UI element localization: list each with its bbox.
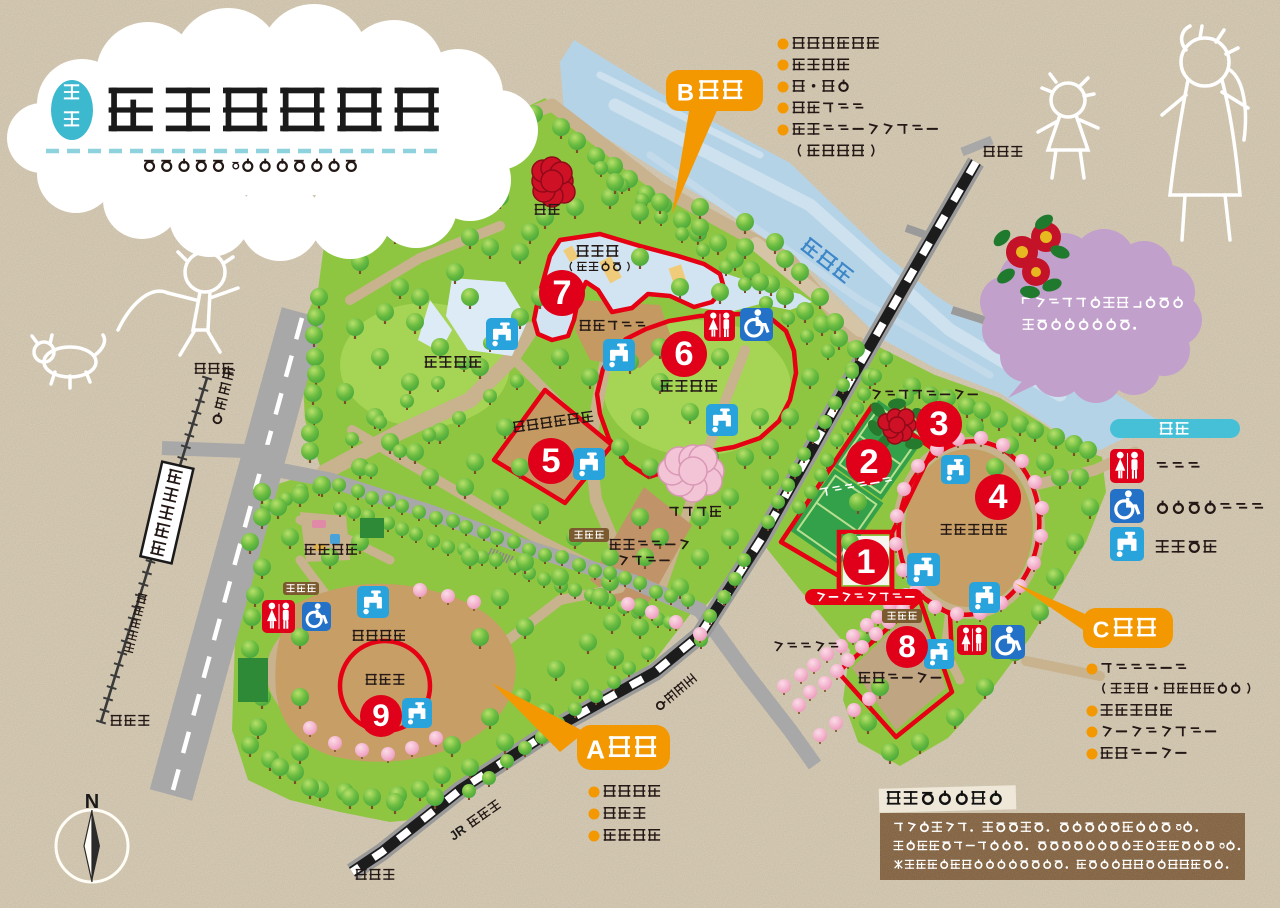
svg-text:B: B xyxy=(677,79,694,106)
svg-text:C: C xyxy=(1093,617,1110,643)
svg-text:9: 9 xyxy=(372,697,390,733)
svg-text:N: N xyxy=(85,791,99,813)
svg-text:6: 6 xyxy=(674,335,693,373)
svg-text:7: 7 xyxy=(552,274,571,312)
svg-text:1: 1 xyxy=(856,543,875,581)
svg-text:A: A xyxy=(586,734,605,764)
svg-text:3: 3 xyxy=(929,405,948,443)
svg-text:5: 5 xyxy=(541,442,560,480)
svg-text:4: 4 xyxy=(988,478,1007,516)
svg-text:2: 2 xyxy=(859,443,878,481)
svg-text:8: 8 xyxy=(898,628,916,664)
